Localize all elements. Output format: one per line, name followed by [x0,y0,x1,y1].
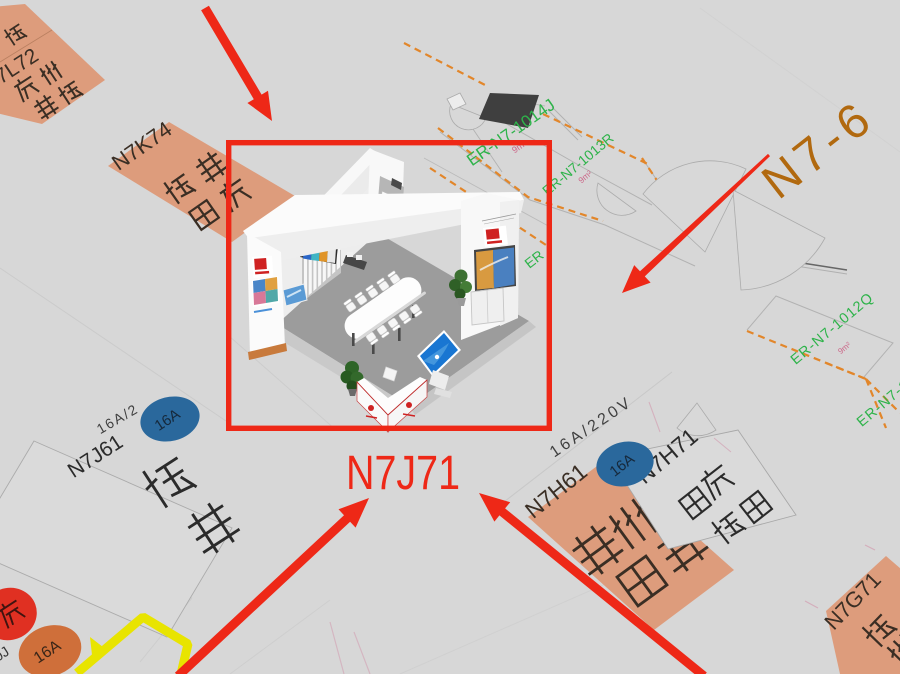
svg-text:N7J71: N7J71 [346,447,460,500]
